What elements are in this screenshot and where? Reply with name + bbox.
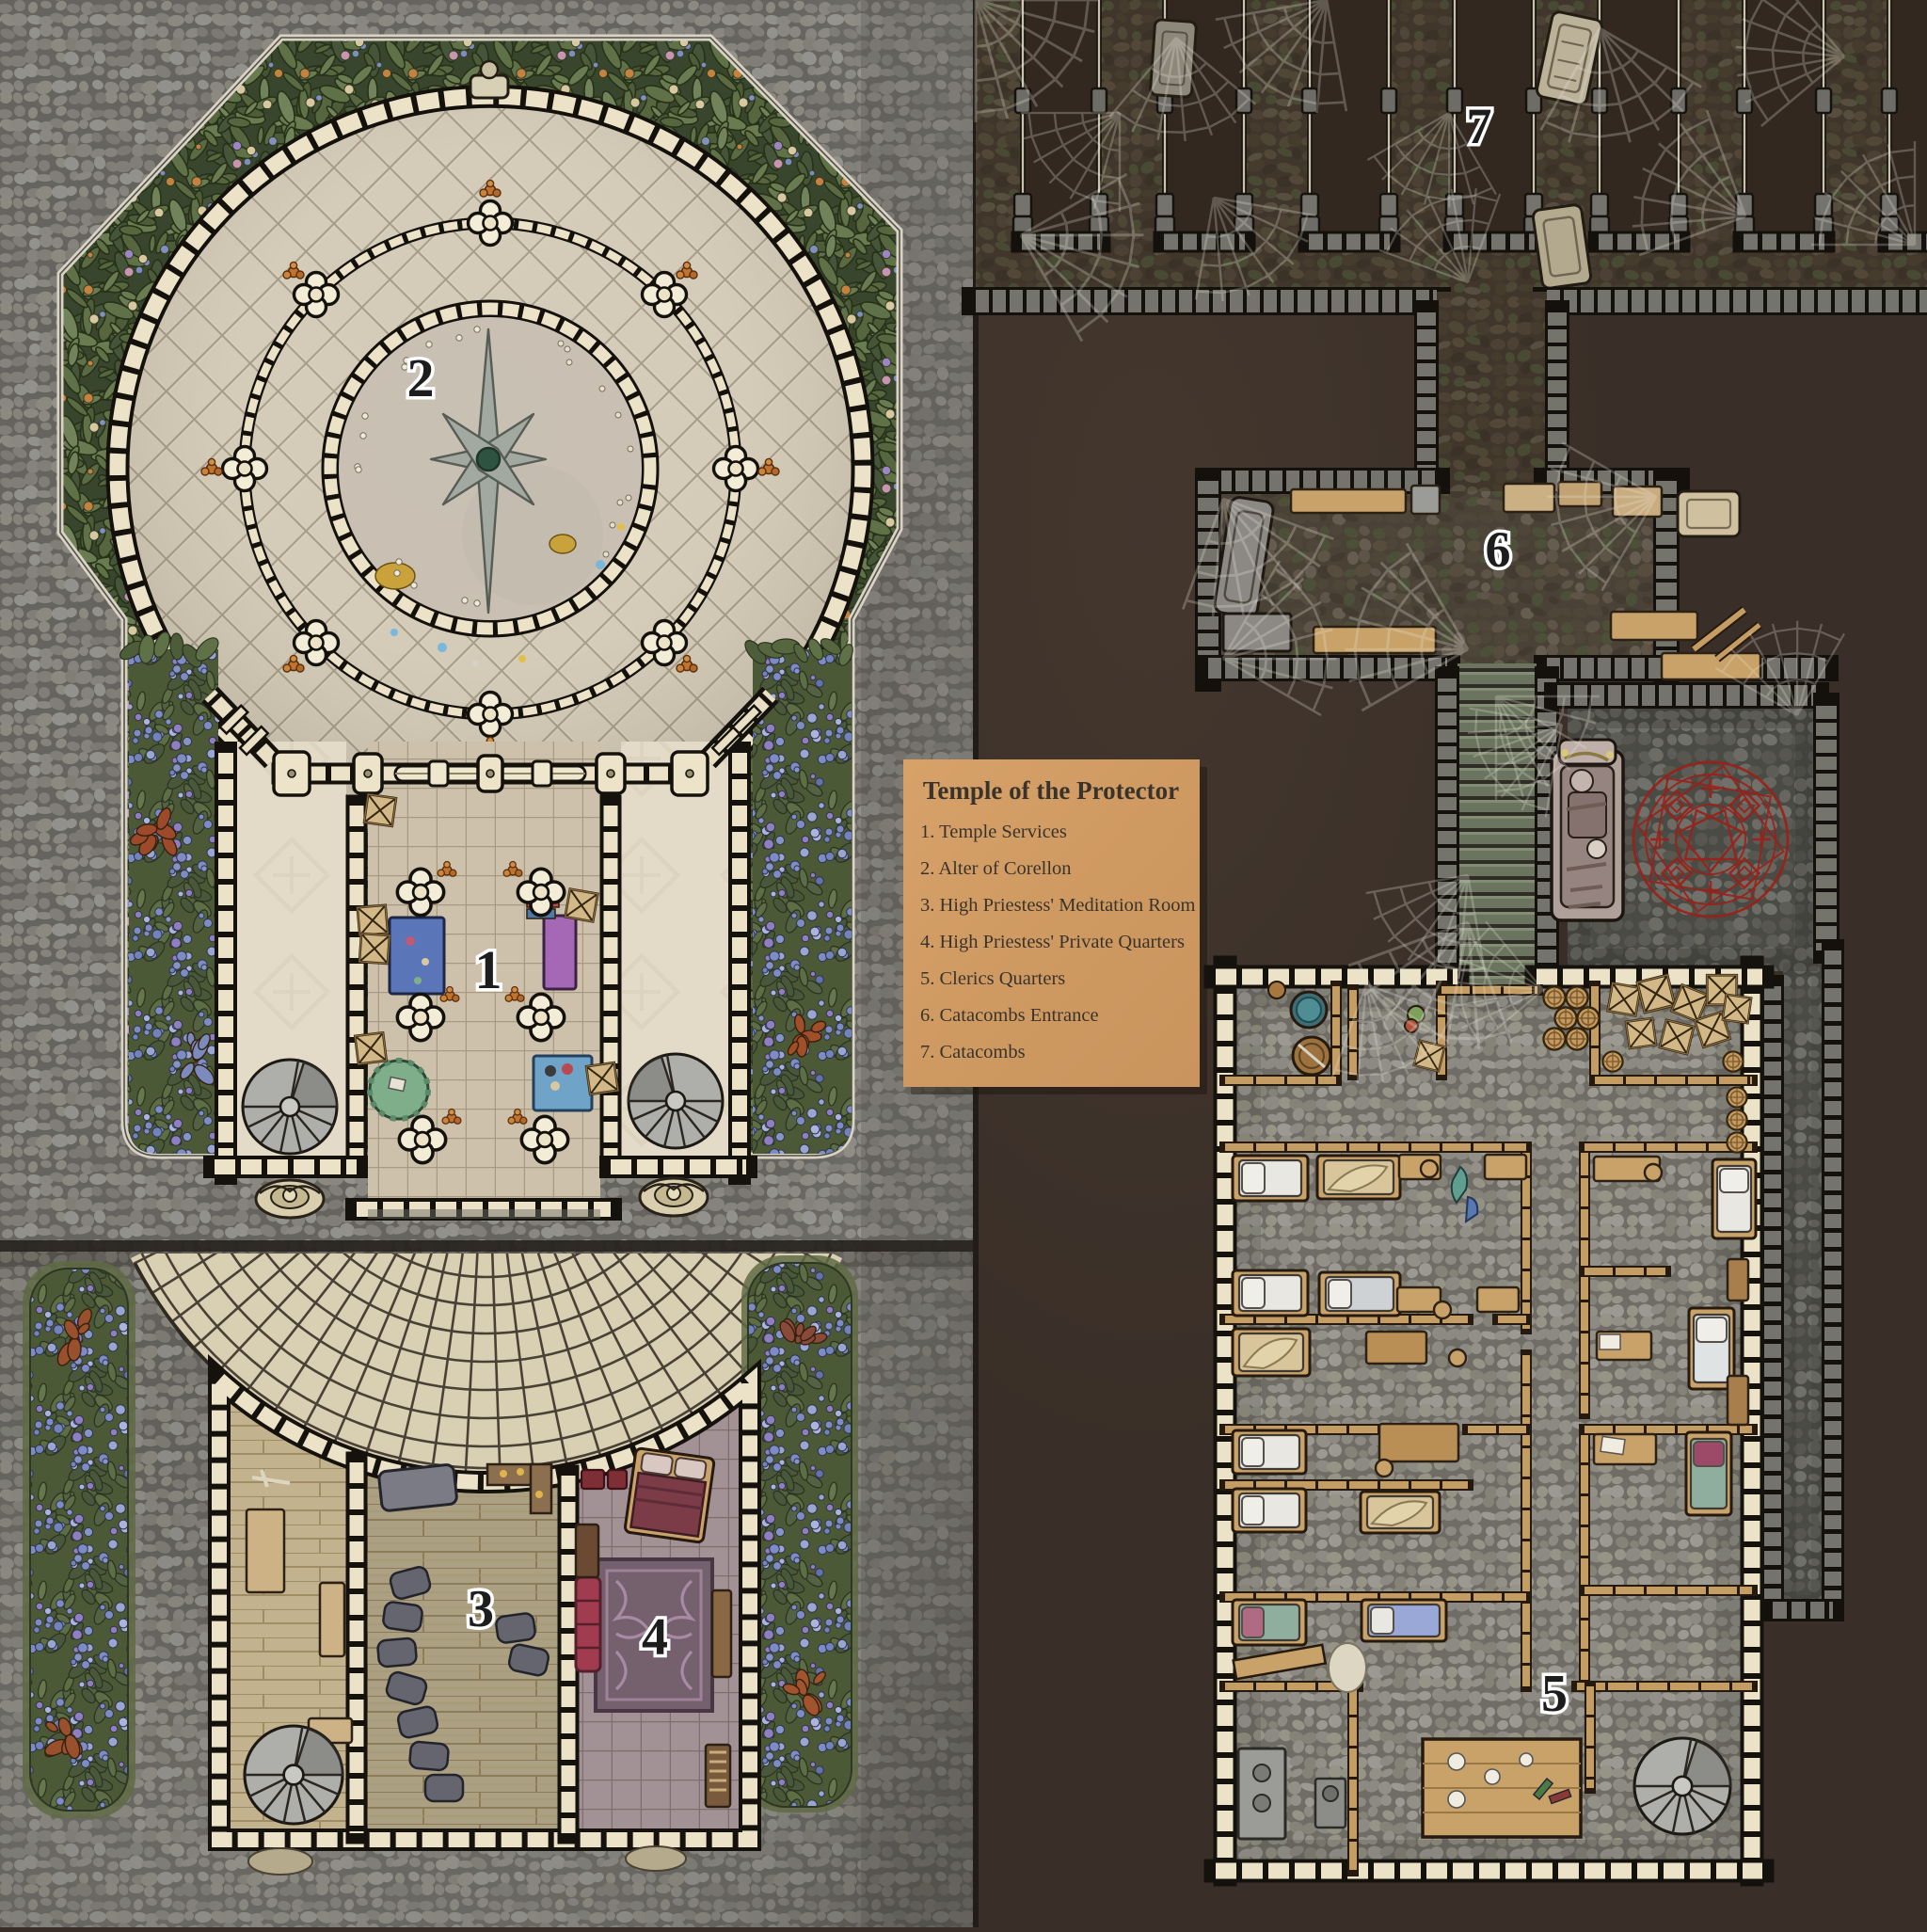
svg-text:5: 5 xyxy=(1541,1665,1568,1723)
svg-text:3. High Priestess' Meditation: 3. High Priestess' Meditation Room xyxy=(920,895,1195,916)
svg-text:7: 7 xyxy=(1467,98,1492,154)
svg-text:4. High Priestess' Private Qua: 4. High Priestess' Private Quarters xyxy=(920,932,1185,952)
svg-text:7. Catacombs: 7. Catacombs xyxy=(920,1042,1026,1062)
svg-text:1. Temple Services: 1. Temple Services xyxy=(920,822,1067,842)
svg-text:6. Catacombs Entrance: 6. Catacombs Entrance xyxy=(920,1005,1099,1026)
svg-text:2. Alter of Corellon: 2. Alter of Corellon xyxy=(920,858,1072,879)
svg-text:2: 2 xyxy=(407,347,435,408)
svg-text:4: 4 xyxy=(642,1608,668,1667)
svg-text:5. Clerics Quarters: 5. Clerics Quarters xyxy=(920,968,1065,989)
svg-text:Temple of the Protector: Temple of the Protector xyxy=(923,776,1179,805)
svg-text:1: 1 xyxy=(475,939,502,1000)
svg-text:3: 3 xyxy=(468,1580,494,1638)
svg-text:6: 6 xyxy=(1486,521,1511,578)
